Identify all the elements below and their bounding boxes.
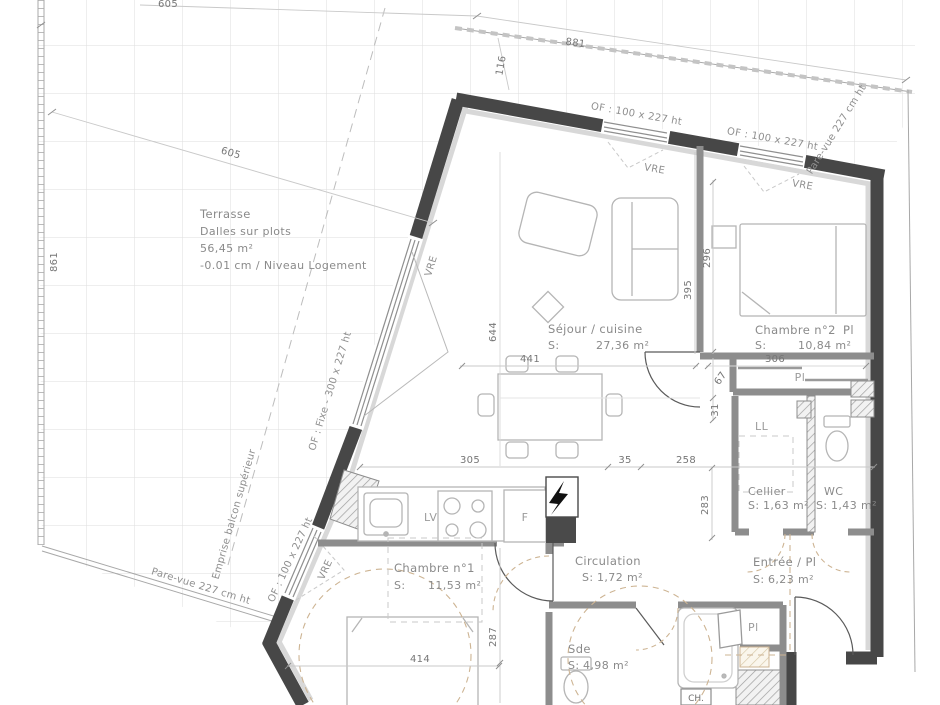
sofa — [612, 198, 678, 300]
cooktop — [438, 491, 492, 541]
dim-31: 31 — [710, 403, 721, 416]
closet-door-entree — [718, 610, 742, 648]
duct-right-1 — [851, 381, 874, 397]
placard-label-closet: Pl — [795, 371, 806, 384]
room-wc-name: WC — [824, 485, 843, 498]
chair — [506, 442, 528, 458]
duct-cellier-top — [797, 401, 811, 418]
room-circulation-name: Circulation — [575, 554, 641, 568]
room-chambre2-s: S: — [755, 339, 767, 352]
room-sejour-s: S: — [548, 339, 560, 352]
dim-305: 305 — [460, 455, 480, 466]
dim-644: 644 — [488, 322, 499, 342]
room-circulation-s: S: — [582, 571, 594, 584]
room-chambre1-name: Chambre n°1 — [394, 561, 475, 575]
room-cellier-area: 1,63 m² — [763, 499, 809, 512]
room-chambre2-area: 10,84 m² — [798, 339, 851, 352]
fridge-label: F — [522, 511, 529, 524]
room-chambre1-area: 11,53 m² — [428, 579, 481, 592]
ch-label: CH. — [688, 694, 704, 704]
placard-label-entree: Pl — [748, 621, 759, 634]
dim-414: 414 — [410, 654, 430, 665]
room-wc-s: S: — [816, 499, 828, 512]
room-chambre1-s: S: — [394, 579, 406, 592]
dim-395: 395 — [683, 280, 694, 300]
property-line-right — [908, 90, 915, 672]
dim-441: 441 — [520, 354, 540, 365]
room-wc-area: 1,43 m² — [831, 499, 877, 512]
dim-861: 861 — [49, 252, 60, 272]
room-chambre2-name: Chambre n°2 — [755, 323, 836, 337]
terrace-surface: Dalles sur plots — [200, 225, 291, 238]
room-sejour-name: Séjour / cuisine — [548, 322, 643, 336]
duct-sde-tan — [740, 647, 769, 667]
chair — [556, 356, 578, 372]
room-sde-name: Sde — [568, 642, 591, 656]
dim-35: 35 — [618, 455, 631, 466]
room-entree-area: 6,23 m² — [768, 573, 814, 586]
dishwasher-label: LV — [424, 511, 437, 524]
room-cellier-s: S: — [748, 499, 760, 512]
floor-plan-drawing: Terrasse Dalles sur plots 56,45 m² -0.01… — [0, 0, 940, 705]
nightstand — [712, 226, 736, 248]
dim-283: 283 — [700, 495, 711, 515]
chair — [606, 394, 622, 416]
room-circulation-area: 1,72 m² — [597, 571, 643, 584]
terrace-name: Terrasse — [199, 207, 251, 221]
electrical-panel — [546, 477, 578, 543]
dim-258: 258 — [676, 455, 696, 466]
chair — [478, 394, 494, 416]
room-sde-area: 4,98 m² — [583, 659, 629, 672]
room-entree-name: Entrée / Pl — [753, 555, 816, 569]
washer-label: LL — [755, 420, 769, 433]
room-sejour-area: 27,36 m² — [596, 339, 649, 352]
placard-label-chambre2: Pl — [843, 323, 854, 337]
dim-287: 287 — [488, 627, 499, 647]
toilet-wc — [824, 416, 850, 461]
duct-sde-gray — [736, 670, 780, 705]
terrace-note: -0.01 cm / Niveau Logement — [200, 259, 367, 272]
dim-296: 296 — [702, 248, 713, 268]
kitchen-counter — [358, 487, 546, 542]
dim-306: 306 — [765, 354, 785, 365]
chair — [556, 442, 578, 458]
terrace-area: 56,45 m² — [200, 242, 253, 255]
room-sde-s: S: — [568, 659, 580, 672]
room-cellier-name: Cellier — [748, 485, 786, 498]
dim-605-top: 605 — [158, 0, 178, 10]
duct-right-2 — [851, 400, 874, 417]
room-entree-s: S: — [753, 573, 765, 586]
floor-plan: Terrasse Dalles sur plots 56,45 m² -0.01… — [0, 0, 940, 705]
